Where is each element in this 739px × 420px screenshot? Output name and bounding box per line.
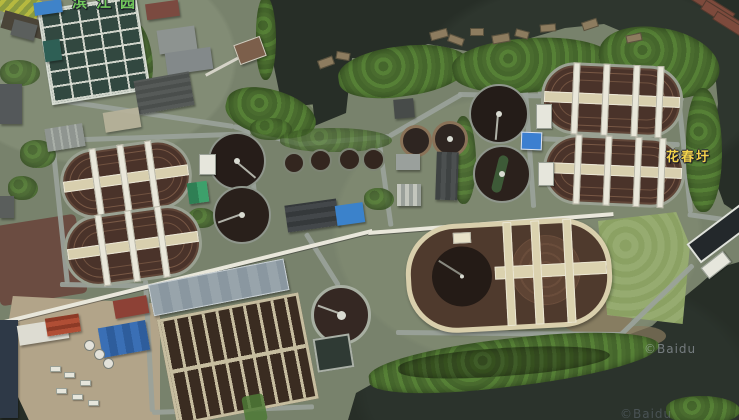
clarifier-tank [473,145,531,203]
truck [56,388,67,394]
center-hub [234,158,240,164]
baidu-watermark: ©Baidu [644,342,696,356]
scraper-arm [495,114,499,140]
clarifier-tank [213,186,271,244]
truck [80,380,91,386]
tank-box [199,154,216,175]
twin-clarifier-platform [403,216,614,336]
tank-box [536,104,552,129]
truck [64,372,75,378]
oxidation-ditch [539,61,684,139]
center-hub [447,136,453,142]
digester-tank [309,149,332,172]
digester-tank [400,125,432,157]
pond [43,39,63,62]
truck [88,400,99,406]
center-hub [496,111,502,117]
tree-cluster [0,60,40,86]
storage-shed [435,152,459,201]
navy-building [0,320,18,418]
teal-roof-house [187,181,210,205]
clarifier-tank-large [430,245,493,308]
tree-cluster [364,188,394,210]
silo-tank [94,349,105,360]
aeration-station [397,184,421,206]
silo-tank [84,340,95,351]
truck [72,394,83,400]
oxidation-ditch [542,133,687,209]
island-green-strip [666,396,739,420]
equipment-box [453,232,472,244]
gray-building [396,154,420,170]
basin-cells [157,292,319,420]
tank-box [538,162,554,186]
scraper-arm [439,260,463,276]
truck [50,366,61,372]
aeration-basin-complex [148,258,314,420]
satellite-map-canvas[interactable]: 滨江园 花春圩 ©Baidu ©Baidu [0,0,739,420]
gray-building [393,98,415,119]
scraper-arm [236,161,256,178]
silo-tank [103,358,114,369]
clarifier-tank [469,84,529,144]
place-label-partial: 滨江园 [72,0,144,12]
center-hub [239,212,245,218]
barge [470,28,484,36]
blue-roof-building [335,202,366,226]
gray-building [0,196,14,218]
digester-tank [283,152,305,174]
gray-building [0,84,22,124]
digester-tank [338,148,361,171]
square-tank [313,333,355,372]
digester-tank [362,148,385,171]
place-label-huachunwei: 花春圩 [666,146,711,165]
barge [540,23,557,32]
center-hub [460,274,464,278]
blue-canopy [521,132,543,151]
clarifier-tank [208,132,266,190]
center-hub [337,311,346,320]
center-hub [499,171,505,177]
baidu-watermark-bottom: ©Baidu [620,407,672,420]
